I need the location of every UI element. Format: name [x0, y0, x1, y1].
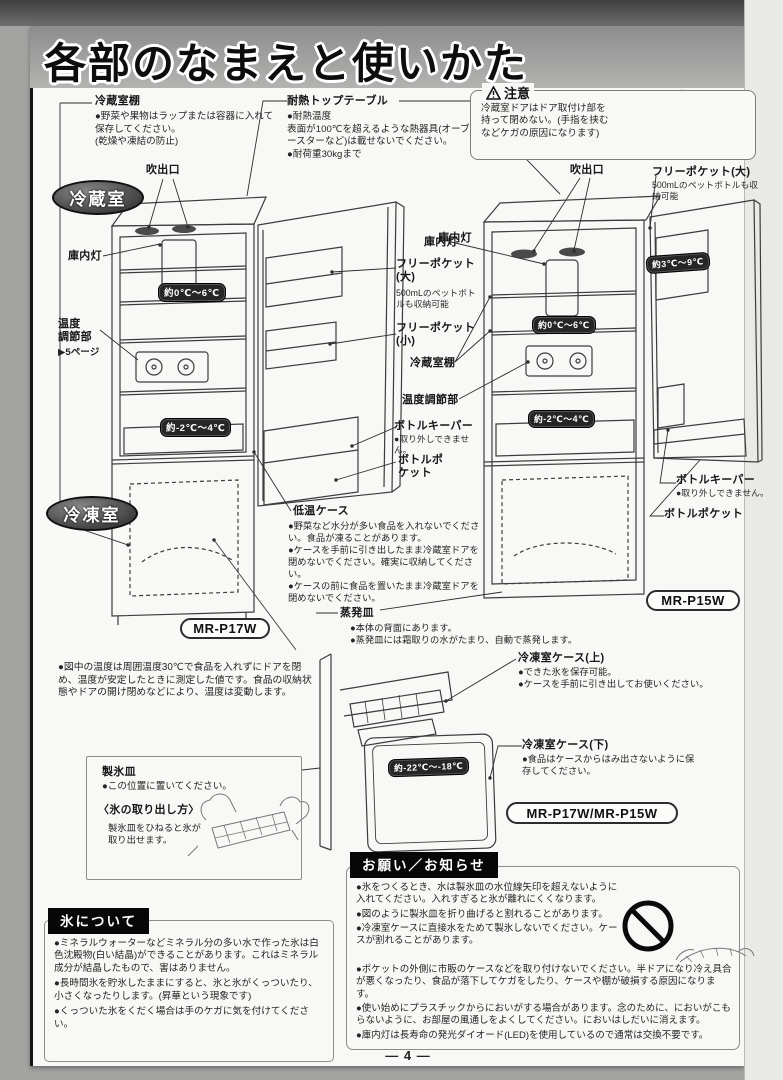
ice-removal-note: 製氷皿をひねると氷が取り出せます。: [108, 822, 208, 846]
model-label-left: MR-P17W: [180, 618, 270, 639]
page-number: ― 4 ―: [368, 1048, 448, 1063]
ice-section-list: ●ミネラルウォーターなどミネラル分の多い水で作った氷は白色沈殿物(白い結晶)がで…: [54, 938, 326, 1031]
model-label-combined: MR-P17W/MR-P15W: [506, 802, 678, 824]
notice-item: ●ポケットの外側に市販のケースなどを取り付けないでください。半ドアになり冷え具合…: [356, 964, 732, 1001]
left-lamp-label: 庫内灯: [68, 250, 102, 263]
left-door-drawing: [258, 202, 404, 506]
caution-heading: 注意: [482, 83, 534, 102]
low-temp-case-label: 低温ケース: [293, 505, 349, 518]
notice-item: ●冷凍室ケースに直接水をためて製氷しないでください。ケースが割れることがあります…: [356, 923, 618, 948]
notice-item: ●氷をつくるとき、水は製氷皿の水位線矢印を超えないように入れてください。入れすぎ…: [356, 882, 618, 907]
warning-triangle-icon: [486, 86, 501, 100]
evaporation-dish-label: 蒸発皿: [340, 607, 374, 620]
mid-bottle-pocket-label: ボトルポケット: [398, 454, 446, 480]
manual-page: 各部のなまえと使いかた: [0, 0, 783, 1080]
freezer-unit-drawing: [320, 654, 496, 852]
mid-bottle-keeper-label: ボトルキーパー: [394, 420, 473, 433]
heat-table-note: ●耐熱温度 表面が100℃を超えるような熱器具(オーブントースターなど)は載せな…: [287, 111, 492, 161]
fridge-compartment-badge: 冷蔵室: [52, 180, 144, 215]
ice-tray-title: 製氷皿: [102, 766, 136, 779]
right-free-pocket-large-note: 500mLのペットボトルも収納可能: [652, 180, 762, 202]
ice-item: ●くっついた氷をくだく場合は手のケガに気を付けてください。: [54, 1006, 326, 1031]
ice-tray-note: ●この位置に置いてください。: [102, 781, 262, 793]
notice-list-bottom: ●ポケットの外側に市販のケースなどを取り付けないでください。半ドアになり冷え具合…: [356, 964, 732, 1042]
freezer-case-upper-label: 冷凍室ケース(上): [518, 652, 604, 665]
notice-item: ●使い始めにプラスチックからにおいがする場合があります。念のために、においがこも…: [356, 1003, 732, 1028]
label-fridge-shelf: 冷蔵室棚 ●野菜や果物はラップまたは容器に入れて保存してください。 (乾燥や凍結…: [95, 95, 280, 149]
left-temp-mid-badge: 約0℃～6℃: [158, 283, 226, 302]
heat-table-title: 耐熱トップテーブル: [287, 95, 492, 108]
mid-free-pocket-large-note: 500mLのペットボトルも収納可能: [396, 288, 478, 310]
mid-fridge-shelf-label: 冷蔵室棚: [410, 357, 455, 370]
ice-removal-title: 〈氷の取り出し方〉: [98, 804, 200, 817]
mid-temp-ctrl-label: 温度調節部: [402, 394, 459, 407]
low-temp-case-note: ●野菜など水分が多い食品を入れないでください。食品が凍ることがあります。 ●ケー…: [288, 520, 486, 605]
notice-list-top: ●氷をつくるとき、水は製氷皿の水位線矢印を超えないように入れてください。入れすぎ…: [356, 882, 618, 948]
right-bottle-keeper-label: ボトルキーパー: [676, 474, 755, 487]
ice-section-header: 氷について: [48, 908, 149, 934]
notice-item: ●庫内灯は長寿命の発光ダイオード(LED)を使用しているので通常は交換不要です。: [356, 1030, 732, 1042]
right-bottle-pocket-label: ボトルポケット: [664, 508, 743, 521]
freezer-compartment-badge: 冷凍室: [46, 496, 138, 531]
left-temp-ctrl-pageref: ▶5ページ: [58, 347, 99, 359]
label-heat-table: 耐熱トップテーブル ●耐熱温度 表面が100℃を超えるような熱器具(オーブントー…: [287, 95, 492, 161]
left-temp-low-badge: 約-2℃～4℃: [160, 418, 231, 437]
caution-body: 冷蔵室ドアはドア取付け部を持って閉めない。(手指を挟むなどケガの原因になります): [481, 103, 609, 140]
mid-bottle-keeper-note: ●取り外しできません。: [394, 434, 486, 456]
model-label-right: MR-P15W: [646, 590, 740, 611]
freezer-case-upper-note: ●できた氷を保存可能。 ●ケースを手前に引き出してお使いください。: [518, 666, 736, 690]
left-outlet-label: 吹出口: [146, 164, 180, 177]
right-temp-mid-badge: 約0℃～6℃: [532, 316, 596, 334]
temperature-note: ●図中の温度は周囲温度30℃で食品を入れずにドアを閉め、温度が安定したときに測定…: [58, 662, 316, 700]
right-door-drawing: [650, 200, 762, 462]
right-free-pocket-large-label: フリーポケット(大): [652, 166, 764, 179]
fridge-shelf-note: ●野菜や果物はラップまたは容器に入れて保存してください。 (乾燥や凍結の防止): [95, 111, 280, 148]
caution-title-text: 注意: [504, 83, 530, 102]
mid-free-pocket-small-label: フリーポケット(小): [396, 322, 482, 348]
ice-item: ●長時間氷を貯氷したままにすると、氷と氷がくっついたり、小さくなったりします。(…: [54, 978, 326, 1003]
right-temp-low-badge: 約-2℃～4℃: [528, 410, 595, 428]
notice-item: ●図のように製氷皿を折り曲げると割れることがあります。: [356, 909, 618, 921]
fridge-shelf-title: 冷蔵室棚: [95, 95, 280, 108]
right-bottle-keeper-note: ●取り外しできません。: [676, 488, 772, 499]
mid-free-pocket-large-label: フリーポケット(大): [396, 258, 482, 284]
right-lamp-label: 庫内灯: [438, 232, 472, 245]
ice-item: ●ミネラルウォーターなどミネラル分の多い水で作った氷は白色沈殿物(白い結晶)がで…: [54, 938, 326, 975]
freezer-case-lower-label: 冷凍室ケース(下): [522, 739, 608, 752]
notice-section-header: お願い／お知らせ: [350, 852, 498, 878]
freezer-case-lower-note: ●食品はケースからはみ出さないように保存してください。: [522, 753, 700, 777]
right-outlet-label: 吹出口: [570, 164, 604, 177]
evaporation-dish-note: ●本体の背面にあります。 ●蒸発皿には霜取りの水がたまり、自動で蒸発します。: [350, 622, 605, 646]
freezer-temp-badge: 約-22℃～-18℃: [388, 757, 470, 778]
left-temp-ctrl-label: 温度 調節部: [58, 318, 92, 344]
